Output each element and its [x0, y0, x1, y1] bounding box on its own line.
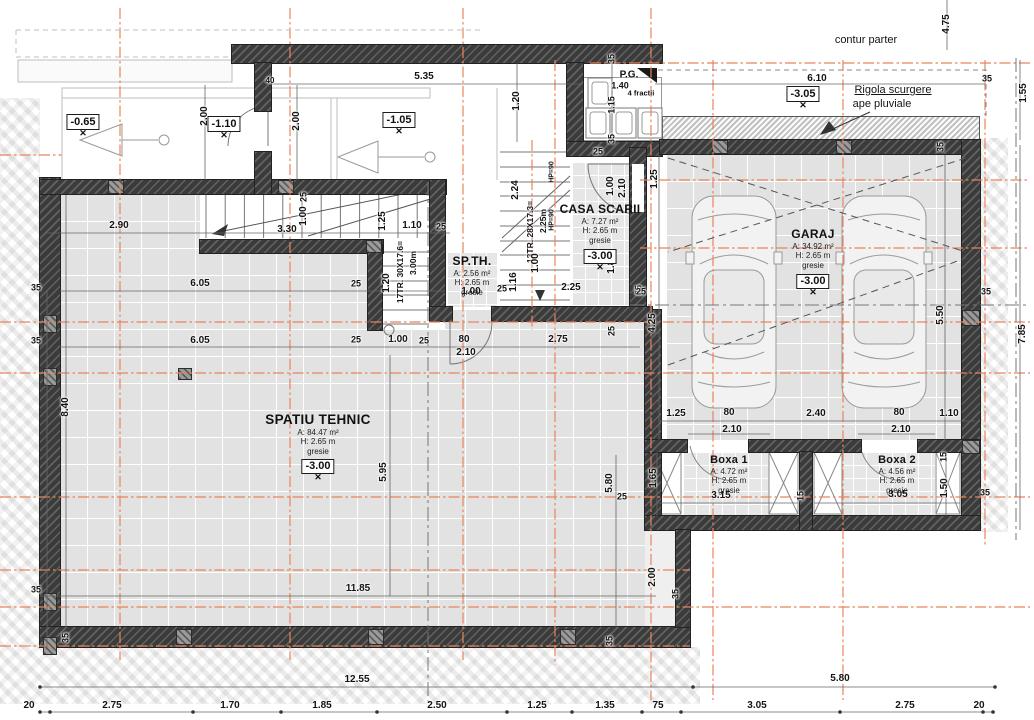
dimension-label: 2.10 — [722, 425, 741, 435]
dimension-label: 5.80 — [605, 473, 615, 492]
dimension-label: 1.15 — [608, 96, 617, 114]
dimension-label: 1.25 — [650, 169, 660, 188]
dimension-label: 2.10 — [618, 178, 628, 197]
dimension-label: 2.75 — [102, 701, 121, 711]
dimension-label: 35 — [608, 134, 617, 144]
dimension-tick — [640, 710, 644, 714]
room-floor: gresie — [710, 486, 748, 496]
room-floor: gresie — [791, 261, 835, 271]
dimension-label: 1.20 — [512, 91, 522, 110]
dimension-label: 35 — [606, 636, 615, 646]
level-badge: -1.10✕ — [207, 114, 240, 138]
dimension-label: 2.25 — [561, 283, 580, 293]
dimension-label: 4.75 — [942, 14, 952, 33]
level-marker-icon: ✕ — [66, 130, 99, 136]
dimension-label: 1.16 — [509, 272, 519, 291]
annotation-text: 4 fractii — [628, 89, 655, 98]
room-label: SP.TH.A: 2.56 m²H: 2.65 mgresie — [453, 255, 492, 298]
dimension-tick — [279, 710, 283, 714]
dimension-label: 25 — [419, 337, 429, 346]
dimension-label: 35 — [31, 337, 41, 346]
dimension-label: 2.10 — [456, 348, 475, 358]
dimension-label: 2.00 — [292, 111, 302, 130]
dimension-label: 20 — [973, 701, 984, 711]
dimension-label: 25 — [351, 280, 361, 289]
dimension-label: 25 — [617, 493, 627, 502]
room-area: A: 84.47 m² — [265, 428, 370, 438]
room-label: SPATIU TEHNICA: 84.47 m²H: 2.65 mgresie-… — [265, 412, 370, 481]
dimension-label: 25 — [636, 288, 646, 297]
room-floor: gresie — [453, 288, 492, 298]
dimension-tick — [191, 710, 195, 714]
room-area: A: 34.92 m² — [791, 242, 835, 252]
dimension-label: 3.30 — [277, 225, 296, 235]
room-height: H: 2.65 m — [878, 476, 916, 486]
dimension-label: 35 — [31, 586, 41, 595]
dimension-label: 15 — [797, 491, 806, 501]
room-floor: gresie — [560, 236, 641, 246]
dimension-tick — [570, 710, 574, 714]
dimension-label: 1.25 — [666, 409, 685, 419]
dimension-label: 6.05 — [190, 279, 209, 289]
dimension-label: 1.70 — [220, 701, 239, 711]
room-height: H: 2.65 m — [791, 251, 835, 261]
dimension-label: 2.75 — [895, 701, 914, 711]
dimension-label: 25 — [593, 148, 603, 157]
dimension-label: 1.00 — [299, 206, 309, 225]
dimension-label: HP=90 — [549, 161, 556, 183]
level-marker-icon: ✕ — [207, 132, 240, 138]
dimension-label: 3.00m — [409, 251, 418, 275]
dimension-label: 12.55 — [344, 675, 369, 685]
dimension-label: 2.24 — [511, 180, 521, 199]
dimension-tick — [375, 710, 379, 714]
dimension-label: 5.95 — [379, 462, 389, 481]
dimension-label: 1.00 — [606, 176, 616, 195]
level-marker-icon: ✕ — [786, 102, 819, 108]
dimension-label: 1.55 — [1019, 83, 1029, 102]
dimension-label: 35 — [981, 288, 991, 297]
dimension-label: 5.50 — [936, 305, 946, 324]
dimension-label: 1.20 — [382, 273, 392, 292]
room-name: GARAJ — [791, 228, 835, 242]
level-marker-icon: ✕ — [265, 474, 370, 481]
room-label: CASA SCARIIA: 7.27 m²H: 2.65 mgresie-3.0… — [560, 203, 641, 271]
dimension-tick — [991, 710, 995, 714]
dimension-label: 1.25 — [378, 211, 388, 230]
dimension-label: 35 — [31, 284, 41, 293]
level-badge: -1.05✕ — [382, 110, 415, 134]
dimension-label: 2.00 — [648, 567, 658, 586]
dimension-label: 1.10 — [402, 221, 421, 231]
dimension-tick — [48, 710, 52, 714]
room-height: H: 2.65 m — [453, 278, 492, 288]
dimension-label: 6.05 — [190, 336, 209, 346]
dimension-label: 7.85 — [1018, 324, 1028, 343]
room-name: SPATIU TEHNIC — [265, 412, 370, 428]
dimension-label: 3.05 — [747, 701, 766, 711]
dimension-label: 2.40 — [806, 409, 825, 419]
room-label: Boxa 2A: 4.56 m²H: 2.65 mgresie — [878, 454, 916, 495]
annotation-text: P.G. — [620, 70, 639, 81]
dimension-label: 25 — [608, 326, 617, 336]
dimension-label: 8.40 — [61, 397, 71, 416]
dimension-label: 1.35 — [595, 701, 614, 711]
room-name: Boxa 2 — [878, 454, 916, 467]
room-name: Boxa 1 — [710, 454, 748, 467]
dimension-label: 25 — [497, 285, 507, 294]
dimension-label: 5.80 — [830, 674, 849, 684]
dimension-label: 80 — [893, 408, 904, 418]
level-marker-icon: ✕ — [560, 264, 641, 271]
dimension-label: 6.10 — [807, 74, 826, 84]
dimension-label: 1.85 — [312, 701, 331, 711]
dimension-label: 80 — [458, 335, 469, 345]
room-height: H: 2.65 m — [265, 437, 370, 447]
dimension-label: 11.85 — [346, 584, 370, 594]
dimension-label: 35 — [62, 633, 71, 643]
dimension-tick — [993, 685, 997, 689]
dimension-tick — [38, 710, 42, 714]
dimension-label: 2.25m — [539, 209, 548, 233]
dimension-label: 1.00 — [388, 335, 407, 345]
dimension-tick — [838, 710, 842, 714]
room-height: H: 2.65 m — [710, 476, 748, 486]
dimension-label: 1.50 — [940, 478, 950, 497]
room-area: A: 4.72 m² — [710, 467, 748, 477]
room-floor: gresie — [878, 486, 916, 496]
dimension-label: 35 — [982, 75, 992, 84]
basement-floor-plan: 4.756.10351.555.352.002.001.20401.401.15… — [0, 0, 1034, 720]
level-marker-icon: ✕ — [791, 289, 835, 296]
dimension-label: 75 — [652, 701, 663, 711]
dimension-label: 1.40 — [611, 82, 629, 91]
dimension-label: 80 — [723, 408, 734, 418]
room-area: A: 2.56 m² — [453, 269, 492, 279]
room-area: A: 7.27 m² — [560, 217, 641, 227]
dimension-label: 5.35 — [414, 72, 433, 82]
annotation-text: contur parter — [835, 34, 897, 46]
dimension-label: 20 — [23, 701, 34, 711]
dimension-label: HP=90 — [549, 209, 556, 231]
annotation-text: ape pluviale — [853, 98, 912, 110]
dimension-label: 4.25 — [648, 313, 658, 332]
room-label: Boxa 1A: 4.72 m²H: 2.65 mgresie — [710, 454, 748, 495]
dimension-tick — [38, 685, 42, 689]
dimension-label: 25 — [436, 223, 446, 232]
dimension-label: 25 — [300, 192, 309, 202]
dimension-label: 2.10 — [891, 425, 910, 435]
dimension-label: 2.90 — [109, 221, 128, 231]
room-height: H: 2.65 m — [560, 226, 641, 236]
room-label: GARAJA: 34.92 m²H: 2.65 mgresie-3.00✕ — [791, 228, 835, 296]
level-badge: -0.65✕ — [66, 112, 99, 136]
dimension-label: 35 — [608, 54, 617, 64]
dimension-label: 35 — [980, 489, 990, 498]
room-name: SP.TH. — [453, 255, 492, 269]
dimension-label: 35 — [937, 142, 946, 152]
room-area: A: 4.56 m² — [878, 467, 916, 477]
dimension-label: 1.65 — [649, 468, 659, 487]
room-name: CASA SCARII — [560, 203, 641, 217]
annotation-text: Rigola scurgere — [854, 84, 931, 96]
dimension-tick — [505, 710, 509, 714]
dimension-label: 1.10 — [939, 409, 958, 419]
dimension-label: 1.25 — [527, 701, 546, 711]
dimension-tick — [679, 710, 683, 714]
dimension-label: 40 — [266, 77, 275, 85]
dimension-label: 17TR. 30X17.6= — [396, 241, 405, 303]
dimension-label: 25 — [351, 336, 361, 345]
level-badge: -3.05✕ — [786, 84, 819, 108]
dimension-label: 1.00 — [531, 253, 541, 272]
level-marker-icon: ✕ — [382, 128, 415, 134]
dimension-label: 2.50 — [427, 701, 446, 711]
dimension-label: 35 — [672, 589, 681, 599]
dimension-label: 15 — [940, 452, 949, 462]
rigola-arrowhead — [820, 121, 836, 135]
room-floor: gresie — [265, 447, 370, 457]
dimension-label: 2.75 — [548, 335, 567, 345]
dimension-tick — [691, 685, 695, 689]
